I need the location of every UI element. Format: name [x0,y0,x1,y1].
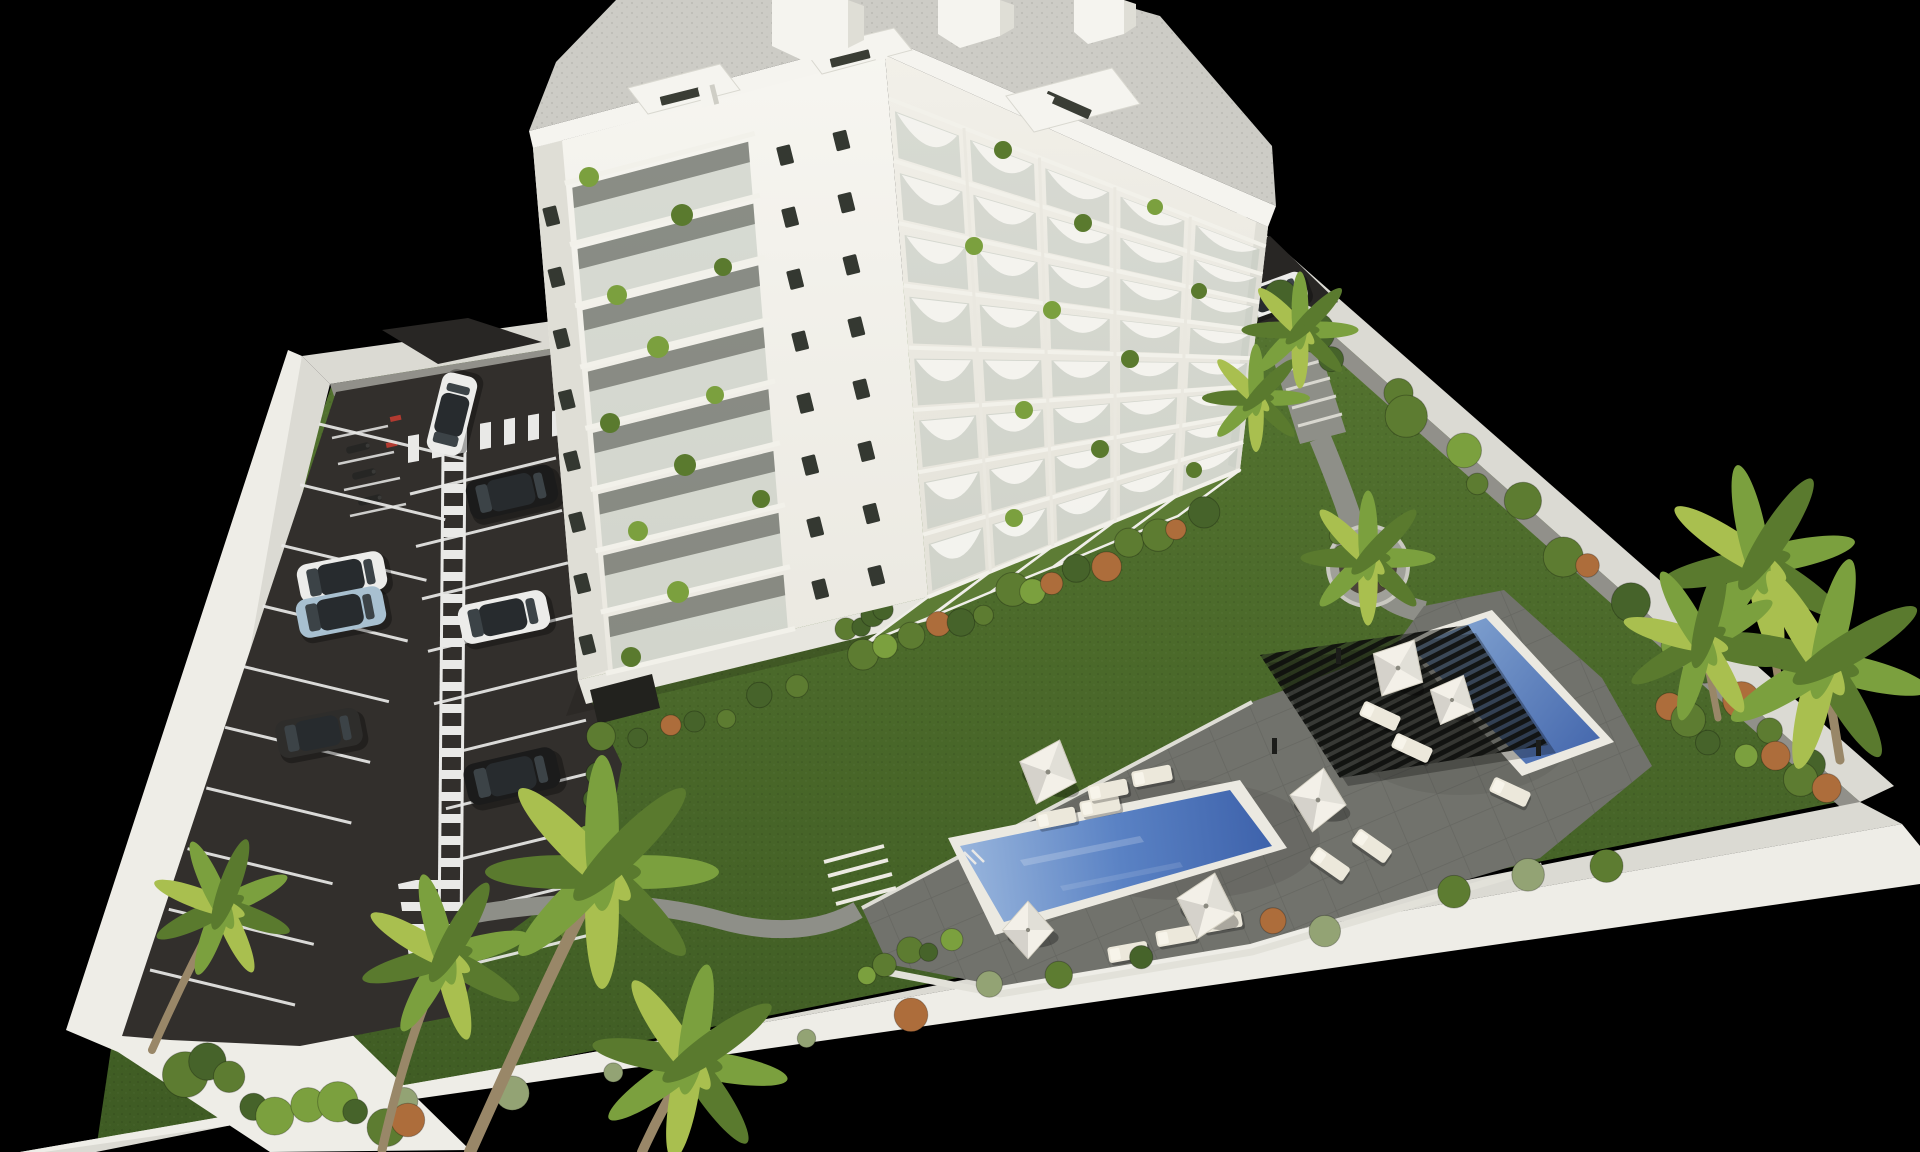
pergola-leg [1336,648,1341,664]
shrub [973,605,993,625]
shrub [1812,774,1841,803]
shrub [1092,552,1122,582]
balcony-plant [671,204,693,226]
shrub [717,710,736,729]
shrub [797,1029,815,1047]
balcony-plant [579,167,599,187]
shrub [747,682,772,707]
balcony-plant [674,454,696,476]
shrub [661,715,682,736]
shrub [1761,741,1790,770]
shrub [1045,961,1072,988]
shrub [786,675,809,698]
balcony-plant [628,521,648,541]
shrub [1062,555,1090,583]
shrub [1260,908,1286,934]
shrub [1438,875,1471,908]
shrub [873,634,898,659]
shrub [898,622,925,649]
shrub [256,1097,294,1135]
balcony-plant [1147,199,1163,215]
shrub [873,953,897,977]
shrub [1188,497,1219,528]
balcony-plant [621,647,641,667]
balcony-plant [1015,401,1033,419]
balcony-plant [1121,350,1139,368]
shrub [976,971,1002,997]
balcony-plant [965,237,983,255]
shrub [213,1061,244,1092]
shrub [1041,572,1063,594]
shrub [1576,554,1600,578]
balcony-plant [714,258,732,276]
pergola-leg [1272,738,1277,754]
palm-tree-10 [1242,272,1359,389]
shrub [1696,730,1721,755]
balcony-plant [706,386,724,404]
balcony-plant [600,413,620,433]
balcony-plant [1091,440,1109,458]
shrub [628,728,648,748]
stair-tower-1-side [848,0,864,48]
balcony-plant [752,490,770,508]
palm-tree-1 [485,755,719,989]
shrub [587,722,616,751]
balcony-plant [1005,509,1023,527]
shrub [684,711,705,732]
shrub [1385,395,1427,437]
shrub [1504,482,1541,519]
balcony-plant [994,141,1012,159]
shrub [919,943,937,961]
palm-tree-8 [1301,491,1436,626]
render-3d-aerial-view: Residential complex — aerial 3D architec… [0,0,1920,1152]
balcony-plant [607,285,627,305]
shrub [894,998,928,1032]
balcony-plant [667,581,689,603]
shrub [1309,915,1340,946]
shrub [1735,744,1758,767]
balcony-plant [1191,283,1207,299]
shrub [947,609,975,637]
shrub [1130,946,1153,969]
shrub [1467,473,1489,495]
pergola-leg [1536,740,1541,756]
shrub [604,1063,623,1082]
balcony-plant [647,336,669,358]
shrub [1166,519,1186,539]
balcony-plant [1074,214,1092,232]
shrub [1512,859,1545,892]
balcony-plant [1043,301,1061,319]
balcony-plant [1186,462,1202,478]
shrub [343,1099,368,1124]
shrub [1114,528,1143,557]
shrub [1590,849,1623,882]
shrub [1757,718,1783,744]
shrub [941,929,963,951]
shrub [1447,433,1482,468]
shrub [1611,583,1650,622]
